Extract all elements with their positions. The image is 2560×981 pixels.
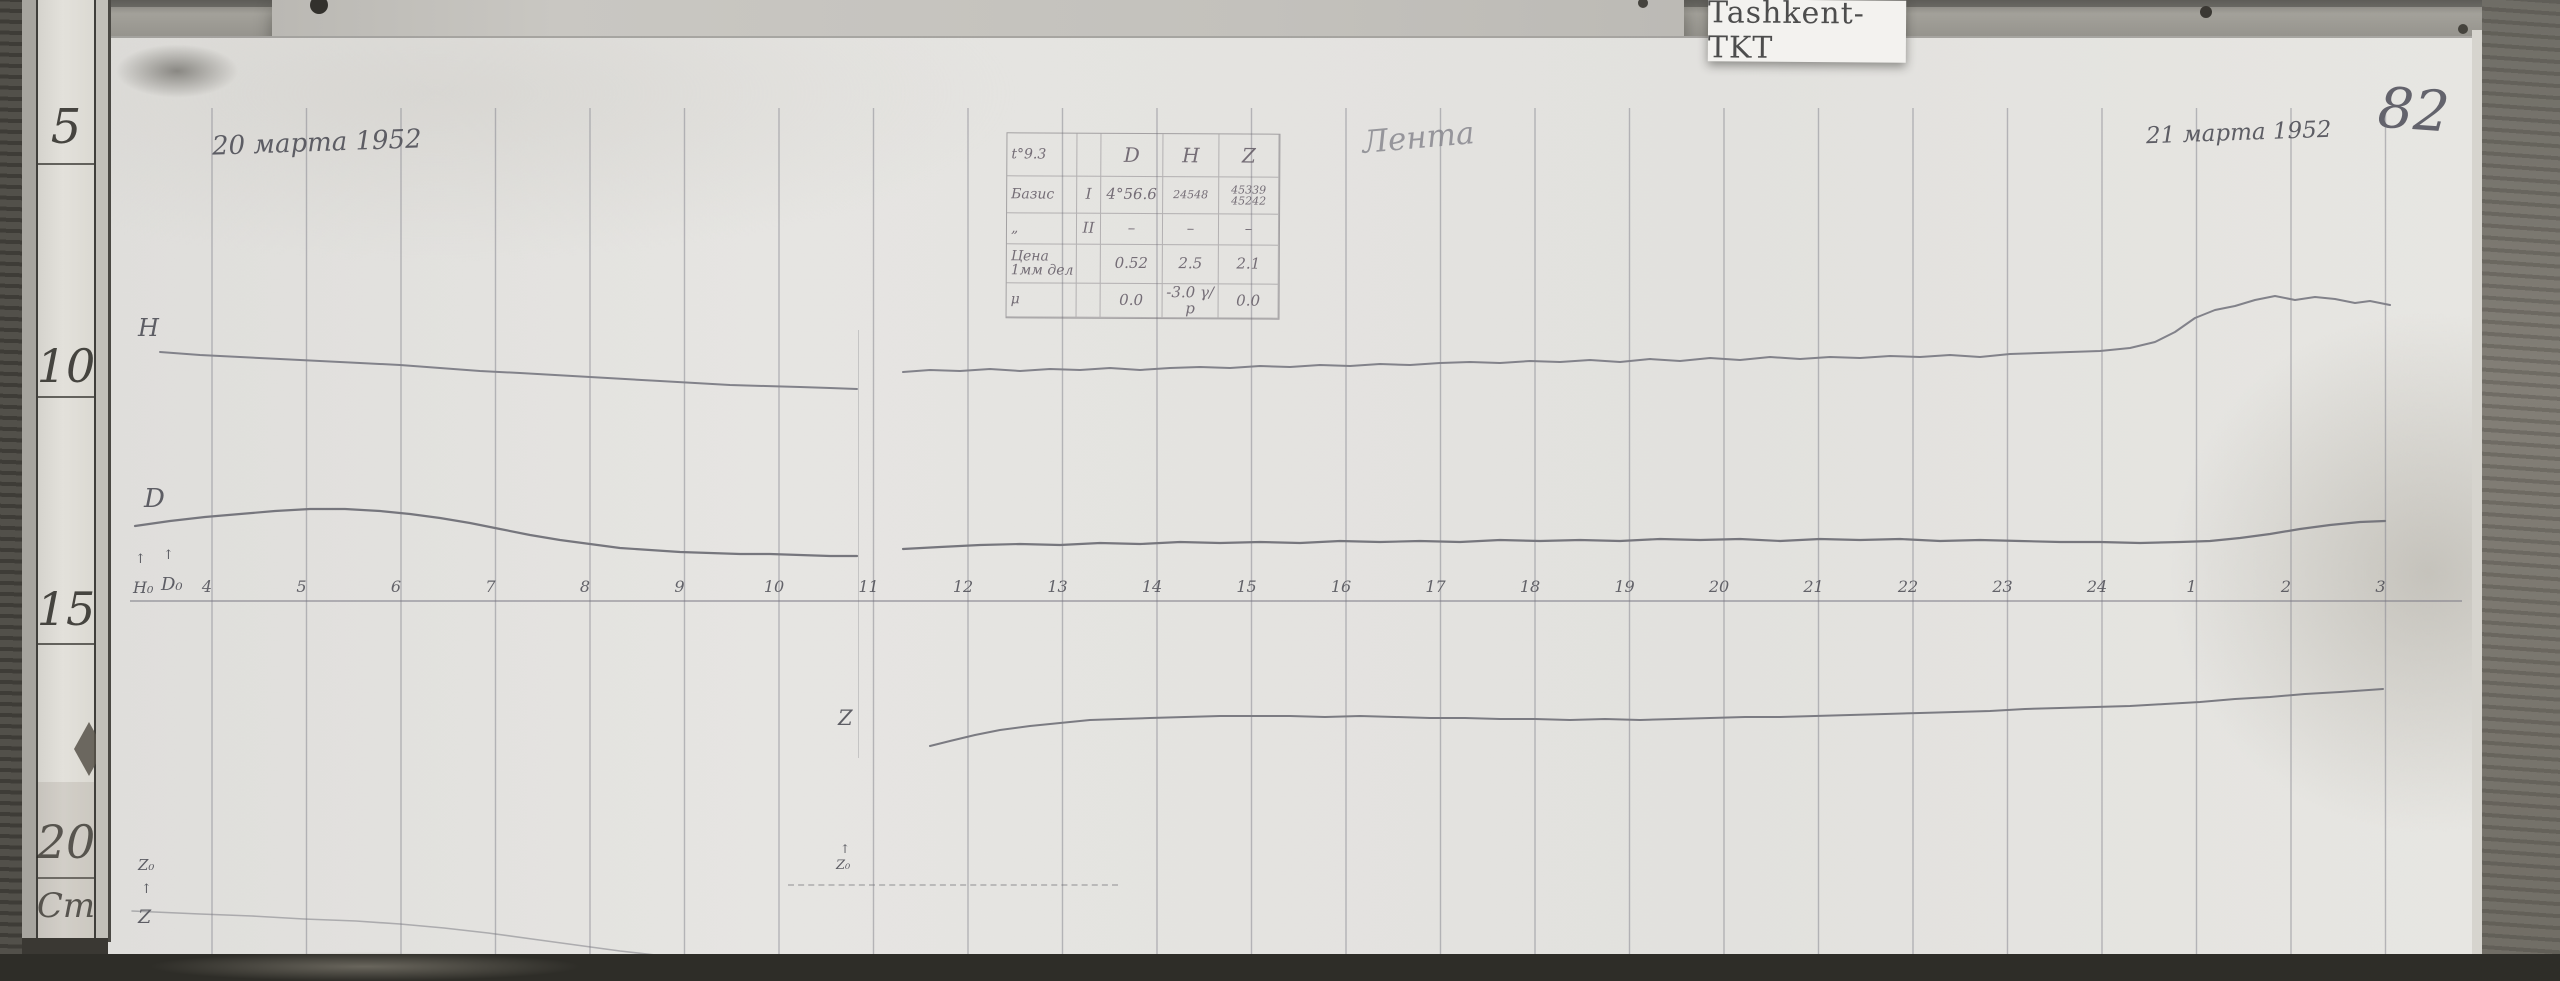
table-cell: Z bbox=[1219, 134, 1279, 177]
ruler-front-face: 5101520Cm bbox=[36, 0, 96, 942]
ruler-divider bbox=[38, 643, 94, 645]
calibration-table: t°9.3DНZБазисI4°56.62454845339 45242„II–… bbox=[1006, 132, 1281, 319]
hour-label: 21 bbox=[1803, 577, 1823, 596]
table-cell: Н bbox=[1163, 134, 1219, 177]
baseline-arrow-icon: ↑ bbox=[141, 882, 152, 897]
curve-label-h: Н bbox=[138, 314, 159, 342]
hour-label: 18 bbox=[1520, 577, 1540, 596]
table-cell: II bbox=[1077, 214, 1101, 245]
hour-label: 14 bbox=[1142, 577, 1162, 596]
table-cell: – bbox=[1101, 214, 1163, 245]
table-cell: 45339 45242 bbox=[1219, 177, 1279, 214]
table-cell: I bbox=[1077, 177, 1101, 214]
table-cell: 24548 bbox=[1163, 177, 1219, 214]
table-cell: D bbox=[1101, 134, 1163, 177]
ruler-mark: 5 bbox=[51, 99, 82, 155]
hour-label: 16 bbox=[1331, 577, 1351, 596]
hour-label: 22 bbox=[1898, 577, 1918, 596]
table-cell: – bbox=[1219, 214, 1279, 245]
table-cell bbox=[1077, 134, 1101, 177]
hour-label: 3 bbox=[2375, 577, 2385, 596]
page-number: 82 bbox=[2376, 76, 2452, 146]
hour-label: 12 bbox=[953, 577, 973, 596]
ruler-divider bbox=[38, 163, 94, 165]
table-cell: -3.0 γ/р bbox=[1163, 284, 1219, 318]
z0-baseline-dashed-line bbox=[788, 884, 1118, 886]
table-cell: Базис bbox=[1007, 176, 1077, 213]
hour-label: 4 bbox=[202, 577, 212, 596]
magnetogram-photo: 456789101112131415161718192021222324123 … bbox=[0, 0, 2560, 981]
hour-label: 8 bbox=[580, 577, 590, 596]
cm-ruler: 5101520Cm bbox=[22, 0, 108, 942]
hour-label: 6 bbox=[391, 577, 401, 596]
ruler-gap-line bbox=[108, 0, 111, 942]
table-cell: „ bbox=[1007, 213, 1077, 244]
hour-label: 20 bbox=[1709, 577, 1729, 596]
hour-label: 13 bbox=[1047, 577, 1067, 596]
table-cell: 0.52 bbox=[1101, 245, 1163, 284]
table-cell: – bbox=[1163, 214, 1219, 245]
baseline-label-h0: Н₀ bbox=[133, 578, 153, 597]
hour-label: 2 bbox=[2281, 577, 2291, 596]
curve-label-z: Z bbox=[838, 706, 853, 730]
baseline-label-z0-left: Z₀ bbox=[138, 856, 154, 874]
hour-label: 11 bbox=[858, 577, 878, 596]
table-cell: Цена 1мм дел bbox=[1007, 244, 1077, 283]
hour-label: 1 bbox=[2186, 577, 2196, 596]
hour-label: 15 bbox=[1236, 577, 1256, 596]
hour-label: 10 bbox=[764, 577, 784, 596]
trace-H bbox=[160, 352, 857, 389]
curve-label-d: D bbox=[144, 484, 165, 514]
table-cell: 0.0 bbox=[1219, 284, 1279, 318]
table-cell: 2.5 bbox=[1163, 245, 1219, 284]
table-cell: t°9.3 bbox=[1007, 133, 1077, 176]
hour-label: 17 bbox=[1425, 577, 1445, 596]
baseline-arrow-icon: ↑ bbox=[840, 842, 850, 856]
ruler-outer-strip bbox=[96, 0, 108, 942]
ruler-damaged-area bbox=[38, 782, 94, 938]
hour-label: 7 bbox=[485, 577, 495, 596]
hour-label: 5 bbox=[296, 577, 306, 596]
table-cell: 0.0 bbox=[1101, 284, 1163, 318]
ruler-mark: 10 bbox=[37, 339, 96, 393]
hour-label: 24 bbox=[2087, 577, 2107, 596]
station-label: Tashkent-TKT bbox=[1708, 0, 1906, 63]
trace-Z bbox=[930, 689, 2383, 746]
hour-label: 19 bbox=[1614, 577, 1634, 596]
bottom-shadow-blob bbox=[150, 952, 580, 981]
baseline-arrow-icon: ↑ bbox=[135, 552, 146, 567]
table-cell: μ bbox=[1007, 283, 1077, 317]
hour-label: 9 bbox=[674, 577, 684, 596]
table-cell bbox=[1077, 245, 1101, 284]
baseline-arrow-icon: ↑ bbox=[163, 548, 174, 563]
trace-D bbox=[903, 521, 2385, 549]
ruler-divider bbox=[38, 396, 94, 398]
ruler-side-face bbox=[22, 0, 36, 942]
table-cell: 2.1 bbox=[1219, 245, 1279, 284]
baseline-label-z0-mid: Z₀ bbox=[836, 858, 850, 873]
table-cell bbox=[1077, 284, 1101, 318]
hour-label: 23 bbox=[1992, 577, 2012, 596]
ruler-mark: 15 bbox=[37, 582, 96, 636]
baseline-label-z-left: Z bbox=[138, 906, 151, 928]
baseline-label-d0: D₀ bbox=[161, 574, 183, 595]
table-cell: 4°56.6 bbox=[1101, 177, 1163, 214]
